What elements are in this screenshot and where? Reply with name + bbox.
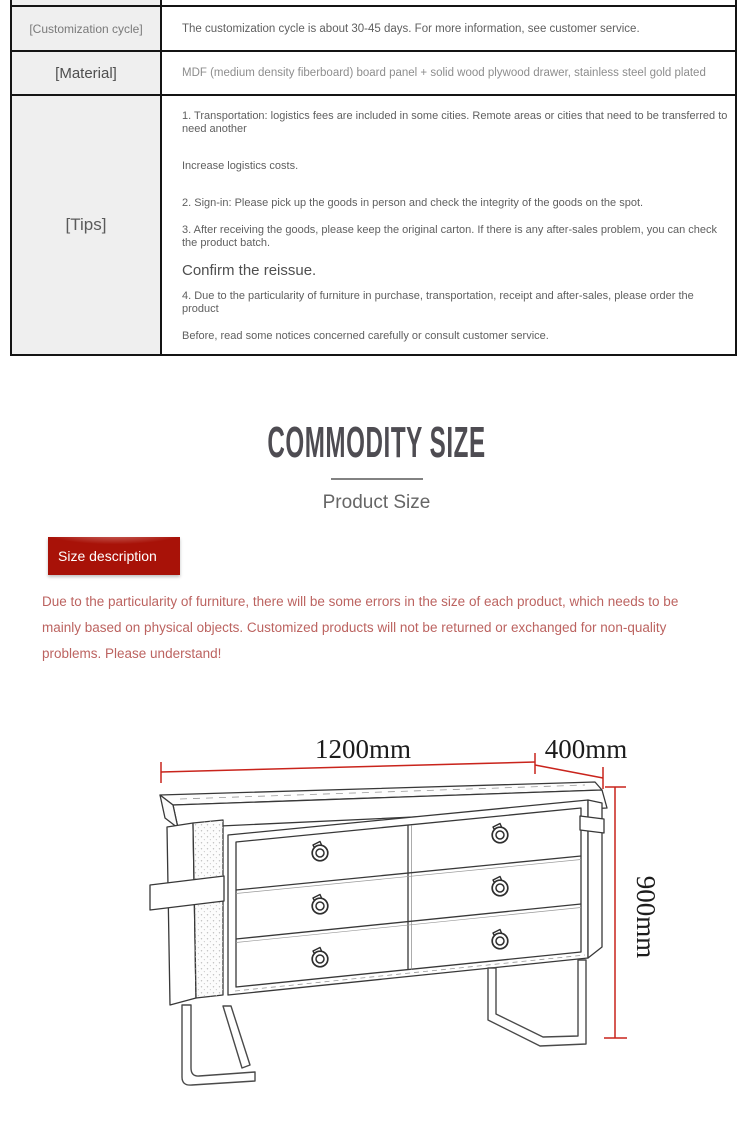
tips-line: Before, read some notices concerned care…: [182, 330, 731, 343]
table-row-partial: [12, 0, 735, 5]
row-label-cell: [Tips]: [12, 96, 162, 354]
tips-line: 3. After receiving the goods, please kee…: [182, 224, 731, 250]
dresser-drawing: [150, 782, 607, 1085]
product-size-subtitle: Product Size: [0, 492, 753, 514]
row-label-cell: [Material]: [12, 52, 162, 94]
tips-line: 1. Transportation: logistics fees are in…: [182, 110, 731, 136]
size-note-text: Due to the particularity of furniture, t…: [42, 589, 718, 667]
table-row: [Material] MDF (medium density fiberboar…: [12, 50, 735, 94]
size-section-header: COMMODITY SIZE Product Size: [0, 421, 753, 514]
heading-divider: [331, 478, 423, 480]
row-content-cell: [162, 0, 735, 5]
width-dimension-label: 1200mm: [315, 734, 411, 764]
product-dimension-diagram: 1200mm 400mm 900mm: [140, 715, 685, 1125]
product-description-page: [Customization cycle] The customization …: [0, 0, 753, 1133]
commodity-size-heading: COMMODITY SIZE: [0, 421, 753, 465]
table-row: [Tips] 1. Transportation: logistics fees…: [12, 94, 735, 354]
row-label-cell: [Customization cycle]: [12, 7, 162, 50]
depth-dimension-label: 400mm: [545, 734, 628, 764]
spec-table: [Customization cycle] The customization …: [10, 0, 737, 356]
tips-line: Increase logistics costs.: [182, 160, 731, 173]
row-content-cell: MDF (medium density fiberboard) board pa…: [162, 52, 735, 94]
height-dimension-label: 900mm: [631, 876, 661, 959]
tips-line: Confirm the reissue.: [182, 264, 731, 277]
table-row: [Customization cycle] The customization …: [12, 5, 735, 50]
row-content-cell: The customization cycle is about 30-45 d…: [162, 7, 735, 50]
tips-line: 2. Sign-in: Please pick up the goods in …: [182, 197, 731, 210]
row-content-cell: 1. Transportation: logistics fees are in…: [162, 96, 735, 354]
row-label-cell: [12, 0, 162, 5]
size-description-badge: Size description: [48, 537, 180, 575]
tips-line: 4. Due to the particularity of furniture…: [182, 290, 731, 316]
